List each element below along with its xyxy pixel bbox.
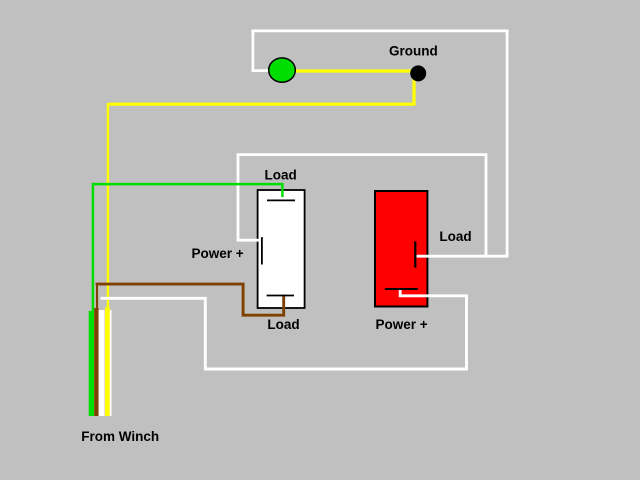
svg-text:Power +: Power +	[192, 246, 244, 261]
svg-text:Ground: Ground	[389, 43, 438, 58]
svg-text:Load: Load	[267, 317, 299, 332]
svg-text:Load: Load	[265, 168, 297, 183]
svg-text:Power +: Power +	[376, 317, 428, 332]
svg-text:From Winch: From Winch	[81, 429, 159, 444]
svg-text:Load: Load	[439, 229, 471, 244]
